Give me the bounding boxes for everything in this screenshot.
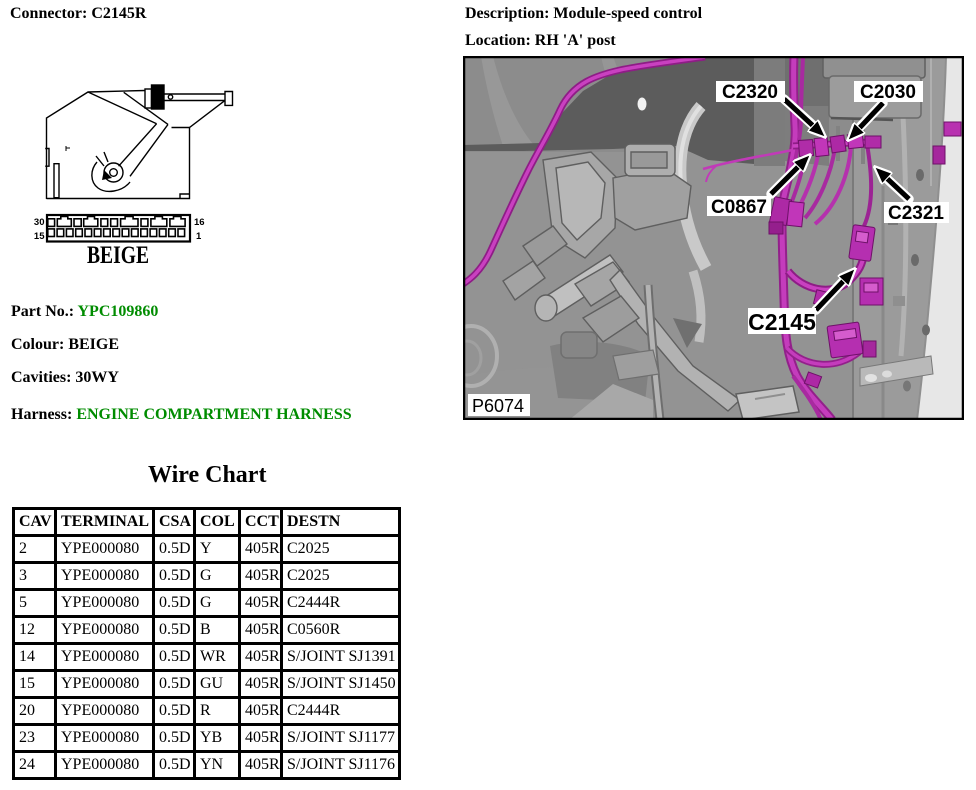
svg-text:C2030: C2030: [860, 82, 916, 103]
svg-text:15: 15: [34, 231, 45, 242]
svg-text:C2145: C2145: [748, 309, 816, 335]
svg-text:C0867: C0867: [711, 197, 767, 218]
svg-text:BEIGE: BEIGE: [87, 242, 149, 269]
svg-text:16: 16: [194, 217, 205, 228]
svg-text:C2320: C2320: [722, 82, 778, 103]
svg-text:P6074: P6074: [472, 396, 524, 416]
svg-text:30: 30: [34, 217, 45, 228]
svg-text:C2321: C2321: [888, 203, 944, 224]
svg-text:1: 1: [196, 231, 202, 242]
